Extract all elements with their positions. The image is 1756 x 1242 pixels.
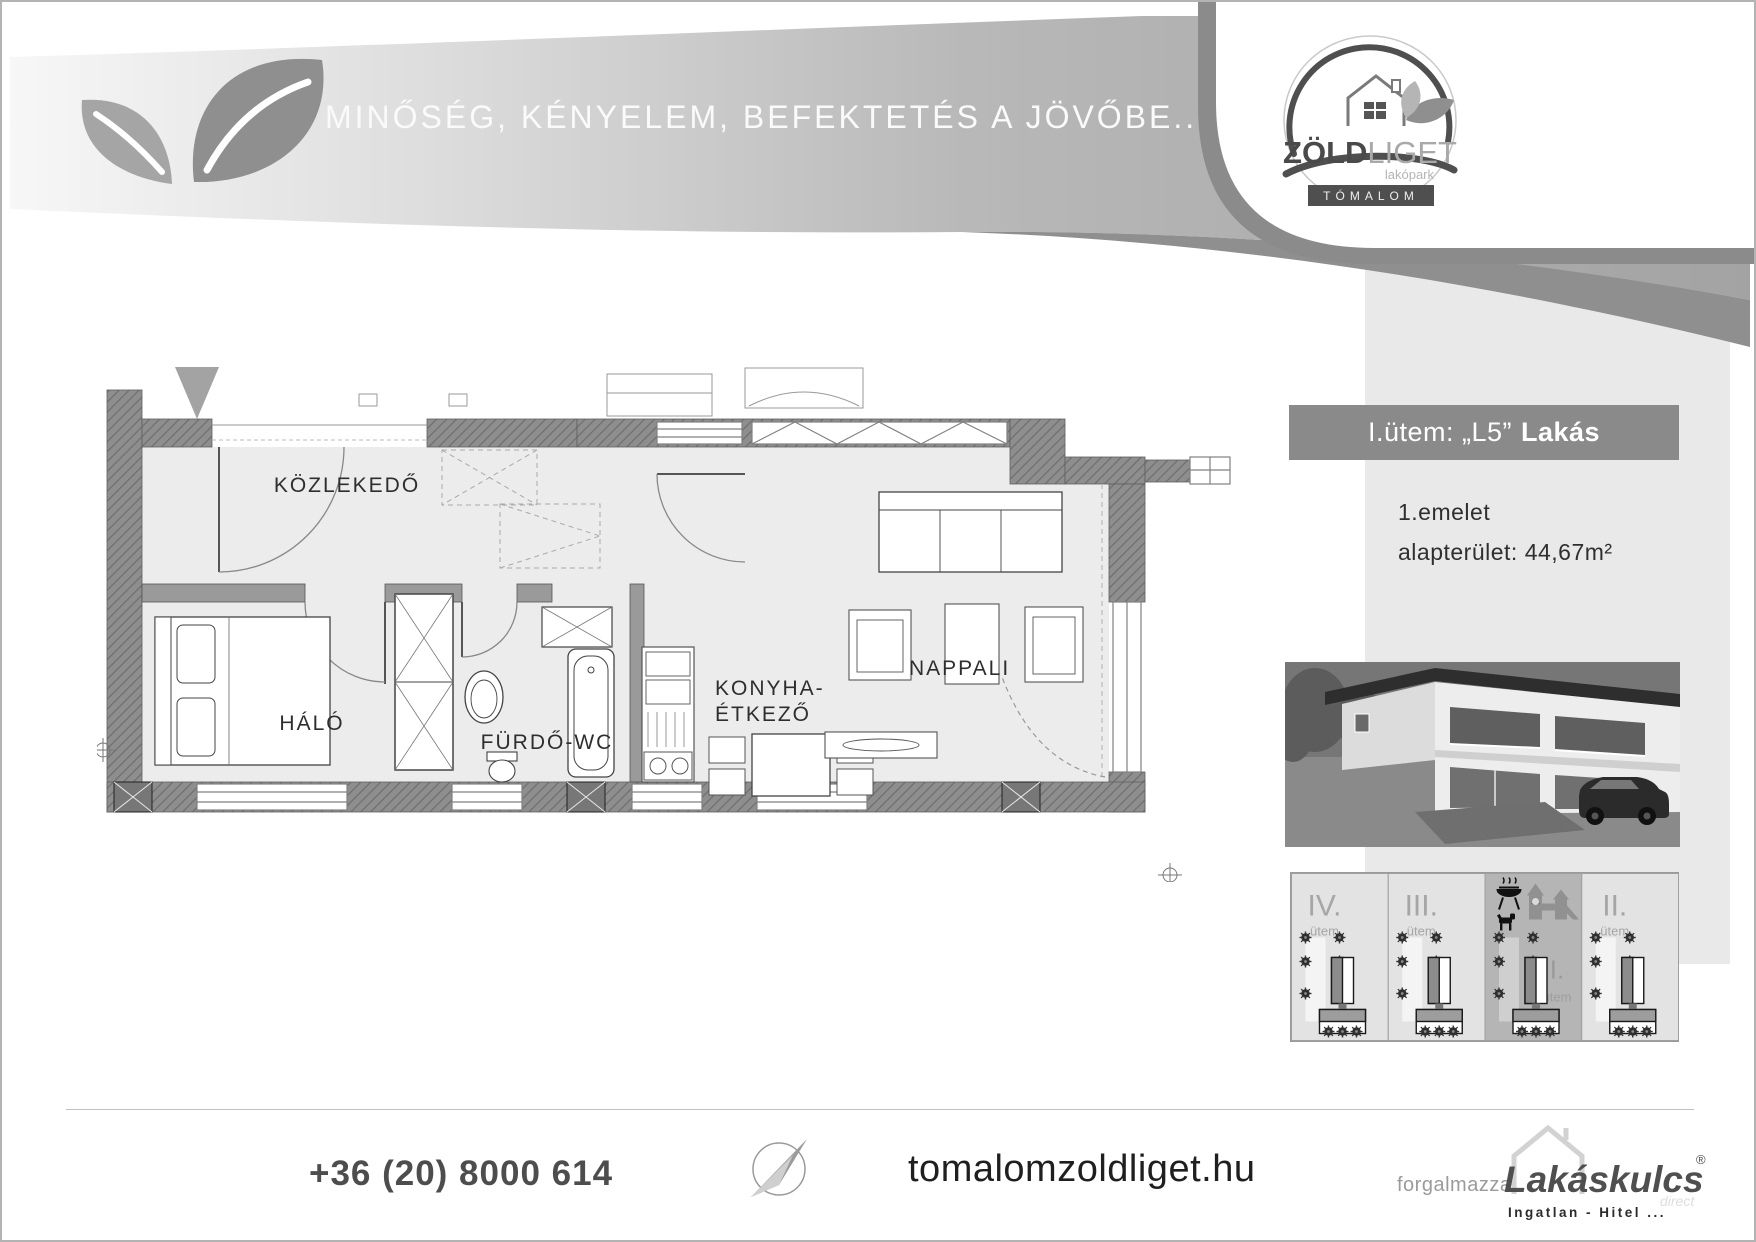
lakaskulcs-wordmark: Lakáskulcs: [1504, 1159, 1704, 1200]
unit-title-prefix: I.ütem: „L5”: [1368, 417, 1512, 448]
header-tagline: MINŐSÉG, KÉNYELEM, BEFEKTETÉS A JÖVŐBE..…: [325, 99, 1209, 135]
header-banner: MINŐSÉG, KÉNYELEM, BEFEKTETÉS A JÖVŐBE..…: [2, 2, 1756, 357]
phase-label: ütem: [1310, 924, 1339, 939]
tv-bench: [825, 732, 937, 758]
entrance-arrow: [175, 367, 219, 419]
label-kitchen-2: ÉTKEZŐ: [715, 703, 811, 726]
phase-numeral: IV.: [1308, 890, 1342, 923]
unit-title-name: Lakás: [1521, 417, 1600, 448]
label-living: NAPPALI: [909, 657, 1010, 680]
paper-plane-icon: [748, 1132, 812, 1204]
floor-plan: KÖZLEKEDŐ HÁLÓ FÜRDŐ-WC KONYHA- ÉTKEZŐ N…: [97, 362, 1237, 882]
toilet: [487, 752, 517, 782]
logo-subtitle: lakópark: [1385, 167, 1435, 182]
location-label: TÓMALOM: [1323, 188, 1419, 203]
building-render: [1285, 662, 1680, 847]
footer-divider: [66, 1109, 1694, 1110]
label-bathroom: FÜRDŐ-WC: [481, 731, 614, 754]
phase-numeral: II.: [1602, 890, 1627, 923]
registered-mark: ®: [1696, 1152, 1706, 1167]
sofa: [879, 492, 1062, 572]
logo-word-zold: ZÖLD: [1283, 135, 1367, 170]
wardrobe: [395, 594, 453, 770]
kitchen-counter: [642, 647, 694, 782]
logo-wordmark: ZÖLDLIGET: [1283, 135, 1457, 170]
unit-floor: 1.emelet: [1398, 492, 1708, 532]
bath-cabinet: [542, 607, 612, 647]
phase-panel-ii: II. ütem: [1582, 874, 1679, 1041]
logo-word-liget: LIGET: [1367, 135, 1457, 170]
phase-label: ütem: [1407, 924, 1436, 939]
site-map: IV. ütem III. ütem: [1290, 872, 1679, 1042]
exterior-fixtures: [359, 368, 863, 416]
phase-numeral: I.: [1550, 955, 1564, 985]
brochure-page: MINŐSÉG, KÉNYELEM, BEFEKTETÉS A JÖVŐBE..…: [0, 0, 1756, 1242]
phase-label: ütem: [1600, 924, 1629, 939]
unit-info: 1.emelet alapterület: 44,67m²: [1398, 492, 1708, 572]
phase-panel-iii: III. ütem: [1388, 874, 1485, 1041]
lakaskulcs-tagline: Ingatlan - Hitel ...: [1508, 1205, 1666, 1220]
unit-area: alapterület: 44,67m²: [1398, 532, 1708, 572]
bathtub: [568, 649, 614, 777]
unit-title-bar: I.ütem: „L5” Lakás: [1289, 405, 1679, 460]
phase-panel-iv: IV. ütem: [1292, 874, 1389, 1041]
phone-number: +36 (20) 8000 614: [309, 1154, 613, 1194]
phase-panel-i: I. ütem: [1485, 874, 1582, 1041]
lakaskulcs-logo: direct Lakáskulcs ® Ingatlan - Hitel ...: [1500, 1114, 1718, 1226]
label-hall: KÖZLEKEDŐ: [274, 474, 420, 497]
label-kitchen-1: KONYHA-: [715, 677, 825, 700]
logo-panel: [1216, 2, 1756, 248]
phase-numeral: III.: [1405, 890, 1438, 923]
website-url: tomalomzoldliget.hu: [908, 1148, 1255, 1191]
label-bedroom: HÁLÓ: [279, 712, 344, 735]
sink: [465, 671, 503, 723]
bed: [155, 617, 330, 765]
